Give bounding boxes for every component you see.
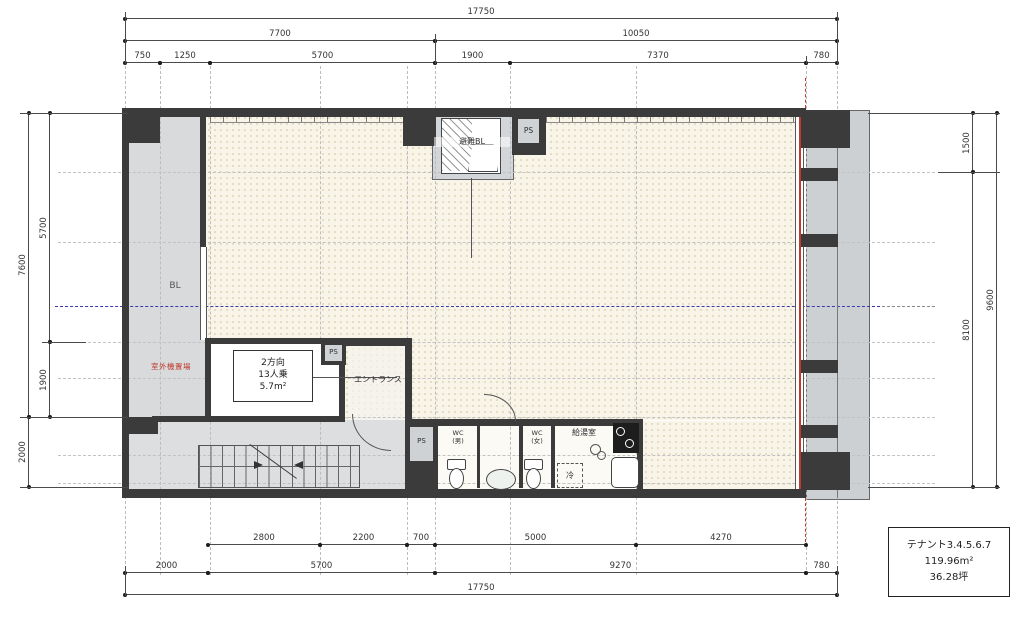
balcony-block-top (801, 110, 850, 148)
pipe-shaft-bottom-label: PS (410, 437, 433, 445)
dim-connector (938, 172, 1000, 173)
left-balcony-floor (128, 115, 206, 417)
dim-bottom-9270: 9270 (435, 572, 806, 573)
balcony-fin (801, 168, 838, 181)
wall-left (122, 108, 129, 498)
window-band-top-east (546, 117, 796, 123)
tenant-note-line2: 119.96m² (889, 554, 1009, 570)
dim-left-7600: 7600 (28, 113, 29, 417)
grid-line-v (510, 66, 511, 575)
elevator-label-line3: 5.7m² (234, 382, 312, 394)
dim-connector (806, 56, 807, 64)
wc-female-label: WC (女) (521, 430, 553, 446)
center-line-blue (55, 306, 880, 307)
dim-bottom-total: 17750 (125, 594, 837, 595)
dim-top-total: 17750 (125, 18, 837, 19)
dim-bottom-5700: 5700 (208, 572, 435, 573)
stair-direction-arrow-right (254, 461, 263, 469)
dim-bottom-700: 700 (407, 544, 435, 545)
dim-left-1900: 1900 (49, 342, 50, 417)
dim-bottom-780: 780 (806, 572, 837, 573)
elevator-label-line2: 13人乗 (234, 370, 312, 382)
dim-connector (125, 12, 126, 64)
grid-line-v (320, 66, 321, 575)
dim-connector (20, 113, 128, 114)
wc-female-label-line2: (女) (521, 438, 553, 446)
dim-bottom-5000: 5000 (435, 544, 636, 545)
dim-right-9600: 9600 (996, 113, 997, 487)
dim-connector (42, 342, 86, 343)
dim-right-1500: 1500 (972, 113, 973, 172)
dim-connector (20, 487, 128, 488)
wall-top (122, 108, 806, 117)
dim-connector (868, 487, 1000, 488)
dim-connector (837, 12, 838, 64)
dim-right-8100: 8100 (972, 172, 973, 487)
wc-male-label-line2: (男) (442, 438, 474, 446)
dim-bottom-4270: 4270 (636, 544, 806, 545)
evacuation-hatch-lid (468, 144, 498, 172)
kitchenette-label: 給湯室 (558, 428, 610, 438)
elevator-label-box: 2方向 13人乗 5.7m² (233, 350, 313, 402)
dim-bottom-2800: 2800 (208, 544, 320, 545)
kitchen-sink (611, 457, 639, 488)
wall-wc-partition1 (477, 424, 480, 488)
dim-connector (125, 566, 126, 596)
wall-balcony-upper (200, 115, 206, 247)
refrigerator-box: 冷 (557, 463, 583, 488)
center-line-ext (882, 306, 935, 307)
red-reference-dash-top (805, 78, 806, 108)
balcony-label: BL (160, 281, 190, 292)
balcony-block-bottom (801, 452, 850, 490)
floor-plan-drawing: 避難BL PS 2方向 13人乗 5.7m² PS エントランス PS WC (… (0, 0, 1021, 625)
dim-top-1900: 1900 (435, 62, 510, 63)
elevator-label-line1: 2方向 (234, 358, 312, 370)
wash-basin (486, 469, 516, 490)
pipe-shaft-top-label: PS (518, 126, 539, 135)
dim-connector (20, 417, 128, 418)
pipe-shaft-mid-label: PS (325, 348, 342, 356)
stove-burner (625, 439, 634, 448)
wall-elevator-west-ext (152, 416, 208, 422)
balcony-fin (801, 425, 838, 438)
dim-top-7370: 7370 (510, 62, 806, 63)
dim-top-5700: 5700 (210, 62, 435, 63)
balcony-fin (801, 234, 838, 247)
dim-left-5700: 5700 (49, 113, 50, 342)
grid-line-v (636, 66, 637, 575)
dim-top-1250: 1250 (160, 62, 210, 63)
dim-connector (837, 566, 838, 596)
outdoor-unit-area-label: 室外機置場 (137, 362, 205, 371)
dim-top-7700: 7700 (125, 40, 435, 41)
dim-bottom-2200: 2200 (320, 544, 407, 545)
window-band-top-west (210, 117, 403, 123)
entrance-label: エントランス (348, 375, 408, 385)
dim-connector (435, 34, 436, 64)
tenant-note-box: テナント3.4.5.6.7 119.96m² 36.28坪 (888, 527, 1010, 597)
wc-male-label: WC (男) (442, 430, 474, 446)
dim-top-10050: 10050 (435, 40, 837, 41)
dim-left-2000: 2000 (28, 417, 29, 487)
dim-connector (868, 113, 1000, 114)
stair-direction-arrow-left (294, 461, 303, 469)
dim-top-750: 750 (125, 62, 160, 63)
dim-top-780: 780 (806, 62, 837, 63)
toilet-bowl-male (449, 468, 464, 489)
tenant-note-line3: 36.28坪 (889, 570, 1009, 586)
toilet-bowl-female (526, 468, 541, 489)
tenant-note-line1: テナント3.4.5.6.7 (889, 538, 1009, 554)
wall-bottom (122, 489, 806, 498)
refrigerator-label: 冷 (566, 470, 574, 481)
column-top-mid (403, 108, 436, 146)
balcony-fin (801, 360, 838, 373)
grid-line-v (210, 66, 211, 575)
stove-burner (616, 427, 625, 436)
grid-line-v (160, 66, 161, 575)
evacuation-hatch-label: 避難BL (434, 137, 510, 147)
dim-bottom-2000: 2000 (125, 572, 208, 573)
water-heater-symbol (597, 451, 606, 460)
hatch-leader-line (471, 178, 472, 258)
window-left-balcony (200, 247, 207, 340)
